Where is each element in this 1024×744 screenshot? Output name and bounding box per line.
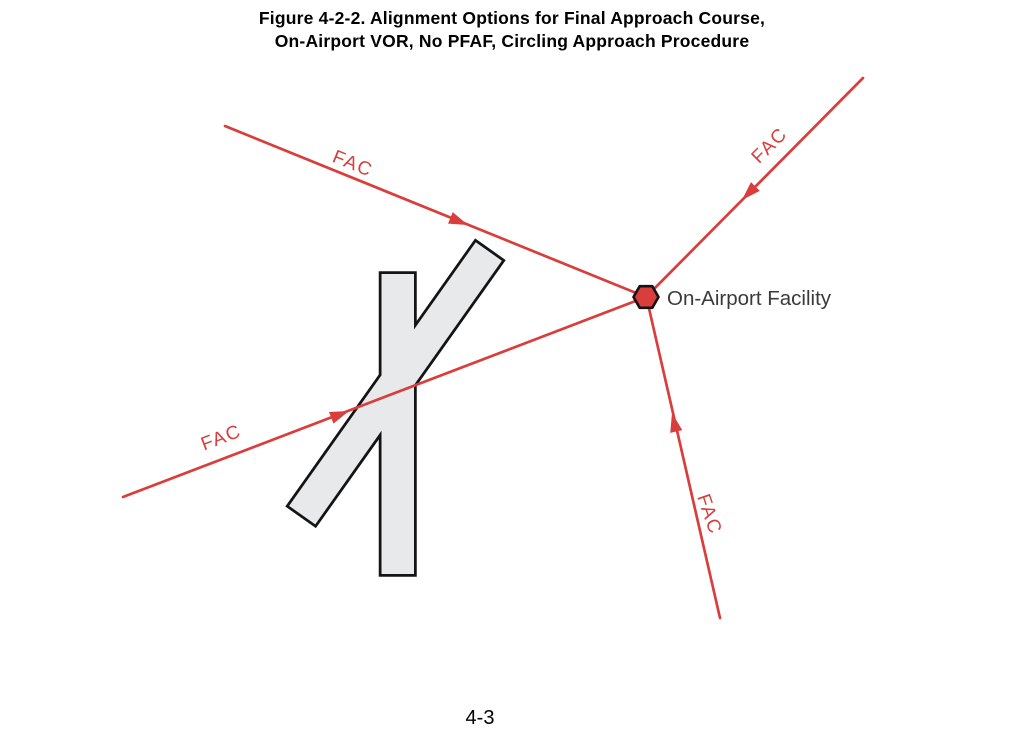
fac-label-west: FAC	[198, 421, 244, 455]
fac-lines	[123, 78, 863, 618]
fac-line-northwest	[225, 126, 646, 297]
document-page: Figure 4-2-2. Alignment Options for Fina…	[0, 0, 1024, 744]
diagram-canvas: FAC FAC FAC FAC On-Airport Facility	[0, 0, 1024, 744]
fac-label-northwest: FAC	[329, 147, 375, 182]
page-number: 4-3	[0, 707, 960, 730]
runway-vertical-fill	[382, 274, 415, 574]
fac-line-south	[648, 304, 720, 618]
runway-complex	[289, 242, 502, 574]
fac-label-northeast: FAC	[748, 124, 792, 168]
fac-line-northeast	[650, 78, 863, 293]
fac-arrowhead-northwest	[448, 212, 470, 231]
diagram-labels: FAC FAC FAC FAC On-Airport Facility	[198, 124, 831, 538]
on-airport-facility-icon	[634, 286, 659, 308]
facility-label: On-Airport Facility	[667, 287, 832, 310]
